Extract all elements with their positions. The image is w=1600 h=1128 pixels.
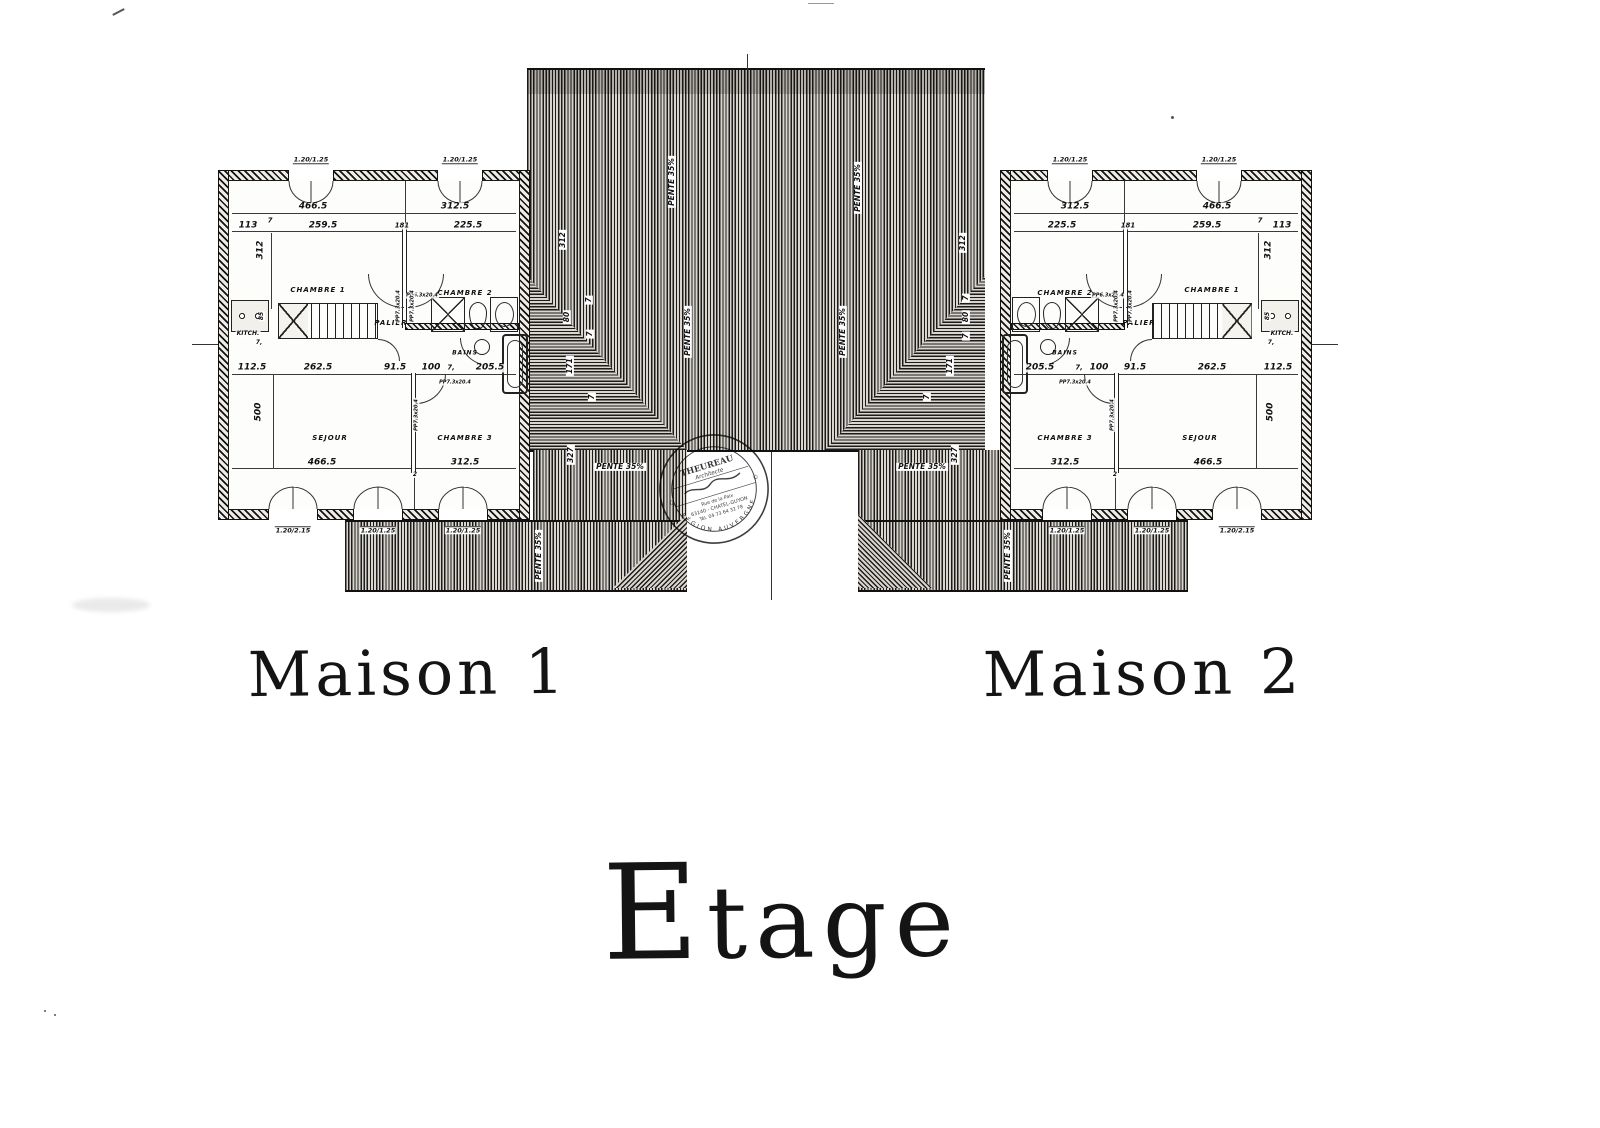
window-size-label: 1.20/1.25: [1049, 526, 1085, 534]
shower-feature: [431, 297, 465, 332]
title-maison-1: Maison 1: [247, 635, 568, 711]
window-opening: [1042, 509, 1092, 520]
pente-or-dim-label: 171: [946, 356, 954, 376]
dimension-label: 100: [1089, 364, 1110, 373]
pente-or-dim-label: 171: [566, 356, 574, 376]
pente-or-dim-label: 327: [951, 445, 959, 465]
pente-or-dim-label: 7: [962, 331, 970, 340]
window-size-label: 1.20/1.25: [1134, 526, 1170, 534]
dimension-label: 2: [412, 472, 418, 478]
dimline-feature: [232, 374, 516, 375]
dimline-feature: [1014, 468, 1298, 469]
dimension-label: PP7.3x20.4: [1111, 398, 1116, 432]
dimension-label: 262.5: [303, 364, 333, 373]
scan-artifact: [808, 3, 834, 4]
dimension-label: 113: [1272, 222, 1293, 231]
stairs-feature: [278, 303, 378, 339]
window-opening: [268, 509, 318, 520]
dimension-label: PP7.3x20.4: [411, 289, 416, 323]
pente-or-dim-label: PENTE 35%: [854, 162, 862, 214]
pente-or-dim-label: PENTE 35%: [839, 306, 847, 358]
window-opening: [353, 509, 403, 520]
window-opening: [437, 170, 483, 181]
dimension-label: 500: [255, 402, 264, 423]
tub-feature: [502, 334, 528, 394]
vline-feature: [1258, 233, 1259, 309]
window-opening: [288, 170, 334, 181]
dimline-feature: [232, 468, 516, 469]
casement-window-icon: [438, 485, 488, 509]
casement: [1127, 485, 1177, 509]
dimension-label: 113: [238, 222, 259, 231]
dimension-label: 312: [1265, 240, 1274, 261]
dimension-label: 7,: [255, 340, 263, 346]
scan-artifact: [44, 1010, 46, 1012]
room-label: BAINS: [1051, 350, 1079, 357]
window-size-label: 1.20/1.25: [1201, 156, 1237, 164]
dimension-label: PP7.3x20.4: [1115, 289, 1120, 323]
casement: [1212, 485, 1262, 509]
pente-or-dim-label: PENTE 35%: [896, 463, 948, 471]
dimension-label: 2: [1112, 472, 1118, 478]
pente-or-dim-label: PENTE 35%: [535, 530, 543, 582]
dimension-label: 466.5: [1193, 459, 1223, 468]
casement: [438, 485, 488, 509]
dimension-label: 181: [1120, 223, 1137, 230]
window-opening: [1047, 170, 1093, 181]
pente-or-dim-label: 7: [962, 293, 970, 302]
window-opening: [1196, 170, 1242, 181]
miniroom-feature: [1012, 297, 1040, 332]
window-opening: [1212, 509, 1262, 520]
dimension-label: KITCH.: [1270, 331, 1295, 337]
dimension-label: 312: [257, 240, 266, 261]
dimension-label: 205.5: [475, 364, 505, 373]
dimline-feature: [1014, 231, 1298, 232]
miniroom-feature: [490, 297, 518, 332]
dimension-label: 466.5: [298, 203, 328, 212]
dimension-label: 7,: [1267, 340, 1275, 346]
room-label: PALIER: [373, 319, 408, 327]
casement-window-icon: [1127, 485, 1177, 509]
dimension-label: 181: [394, 223, 411, 230]
vline-feature: [271, 233, 272, 309]
dimension-label: 91.5: [383, 364, 407, 373]
window-size-label: 1.20/1.25: [293, 156, 329, 164]
scan-artifact: [1171, 116, 1174, 119]
roof-flank-right: [858, 450, 1010, 522]
dimension-label: 262.5: [1197, 364, 1227, 373]
scan-artifact: [72, 598, 150, 612]
dimline-feature: [1014, 213, 1298, 214]
window-size-label: 1.20/1.25: [1052, 156, 1088, 164]
pente-or-dim-label: 80: [563, 310, 571, 324]
pente-or-dim-label: 327: [567, 445, 575, 465]
dimline-feature: [232, 231, 516, 232]
dimension-label: PP6.3x20.4: [1091, 294, 1125, 299]
pente-or-dim-label: PENTE 35%: [1004, 530, 1012, 582]
dimension-label: 312.5: [1050, 459, 1080, 468]
dimension-label: 259.5: [308, 222, 338, 231]
dimension-label: KITCH.: [236, 331, 261, 337]
title-etage: Etage: [602, 833, 963, 991]
vline-feature: [273, 375, 274, 468]
dimension-label: 312.5: [450, 459, 480, 468]
maison-1-plan: 1.20/1.251.20/1.251.20/2.151.20/1.251.20…: [218, 170, 530, 520]
dimension-label: 259.5: [1192, 222, 1222, 231]
window-opening: [1127, 509, 1177, 520]
dimension-label: 466.5: [307, 459, 337, 468]
dimension-label: 7: [267, 218, 274, 225]
casement-window-icon: [268, 485, 318, 509]
casement-window-icon: [1042, 485, 1092, 509]
title-maison-2: Maison 2: [982, 635, 1303, 711]
window-size-label: 1.20/1.25: [442, 156, 478, 164]
pente-or-dim-label: PENTE 35%: [668, 156, 676, 208]
roof-upper-slope: [527, 94, 985, 275]
dimension-label: 91.5: [1123, 364, 1147, 373]
pente-or-dim-label: PENTE 35%: [684, 306, 692, 358]
dimension-label: 7,: [1074, 365, 1084, 372]
dimension-label: 500: [1267, 402, 1276, 423]
pente-or-dim-label: 7: [586, 329, 594, 338]
dimension-label: 225.5: [453, 222, 483, 231]
casement: [268, 485, 318, 509]
shower-feature: [1065, 297, 1099, 332]
scan-artifact: [112, 8, 124, 16]
room-label: CHAMBRE 1: [1183, 286, 1240, 294]
casement-window-icon: [353, 485, 403, 509]
room-label: CHAMBRE 1: [289, 286, 346, 294]
pente-or-dim-label: 312: [959, 233, 967, 253]
dimline-feature: [232, 213, 516, 214]
dimension-label: PP7.3x20.4: [438, 381, 472, 386]
dimension-label: PP7.3x20.4: [415, 398, 420, 432]
room-label: CHAMBRE 2: [436, 289, 493, 297]
dimension-label: 7: [1257, 218, 1264, 225]
maison-2-plan: 1.20/1.251.20/1.251.20/2.151.20/1.251.20…: [1000, 170, 1312, 520]
room-label: SEJOUR: [1181, 434, 1218, 442]
dimension-label: 100: [421, 364, 442, 373]
window-size-label: 1.20/2.15: [275, 526, 311, 534]
pente-or-dim-label: 7: [585, 295, 593, 304]
room-label: SEJOUR: [311, 434, 348, 442]
dimension-label: 312.5: [1060, 203, 1090, 212]
window-size-label: 1.20/1.25: [445, 526, 481, 534]
floor-plan-sheet: 1.20/1.251.20/1.251.20/2.151.20/1.251.20…: [0, 0, 1600, 1128]
vline-feature: [1256, 375, 1257, 468]
dimension-label: PP7.3x20.4: [1058, 381, 1092, 386]
dimension-label: 312.5: [440, 203, 470, 212]
exterior-wall-right: [1301, 170, 1312, 520]
room-label: CHAMBRE 3: [1036, 434, 1093, 442]
window-size-label: 1.20/2.15: [1219, 526, 1255, 534]
pente-or-dim-label: PENTE 35%: [594, 463, 646, 471]
casement-window-icon: [1212, 485, 1262, 509]
casement: [1042, 485, 1092, 509]
dimension-label: PP7.3x20.4: [397, 289, 402, 323]
dimension-label: 112.5: [1263, 364, 1293, 373]
dimension-label: 85: [259, 311, 265, 321]
room-label: CHAMBRE 3: [436, 434, 493, 442]
dimension-label: 85: [1265, 311, 1271, 321]
dimension-label: PP7.3x20.4: [1129, 289, 1134, 323]
casement: [353, 485, 403, 509]
dimension-label: 225.5: [1047, 222, 1077, 231]
scan-artifact: [54, 1014, 56, 1016]
window-size-label: 1.20/1.25: [360, 526, 396, 534]
pente-or-dim-label: 7: [588, 392, 596, 401]
dimension-label: 7,: [446, 365, 456, 372]
dimension-label: 112.5: [237, 364, 267, 373]
ridge-tick: [747, 54, 748, 70]
stairs-feature: [1152, 303, 1252, 339]
pente-or-dim-label: 312: [559, 230, 567, 250]
room-label: BAINS: [451, 350, 479, 357]
room-label: CHAMBRE 2: [1036, 289, 1093, 297]
pente-or-dim-label: 80: [962, 310, 970, 324]
ref-line-right: [1310, 344, 1338, 345]
ref-line-left: [192, 344, 220, 345]
dimension-label: 466.5: [1202, 203, 1232, 212]
pente-or-dim-label: 7: [923, 392, 931, 401]
window-opening: [438, 509, 488, 520]
dimension-label: 205.5: [1025, 364, 1055, 373]
